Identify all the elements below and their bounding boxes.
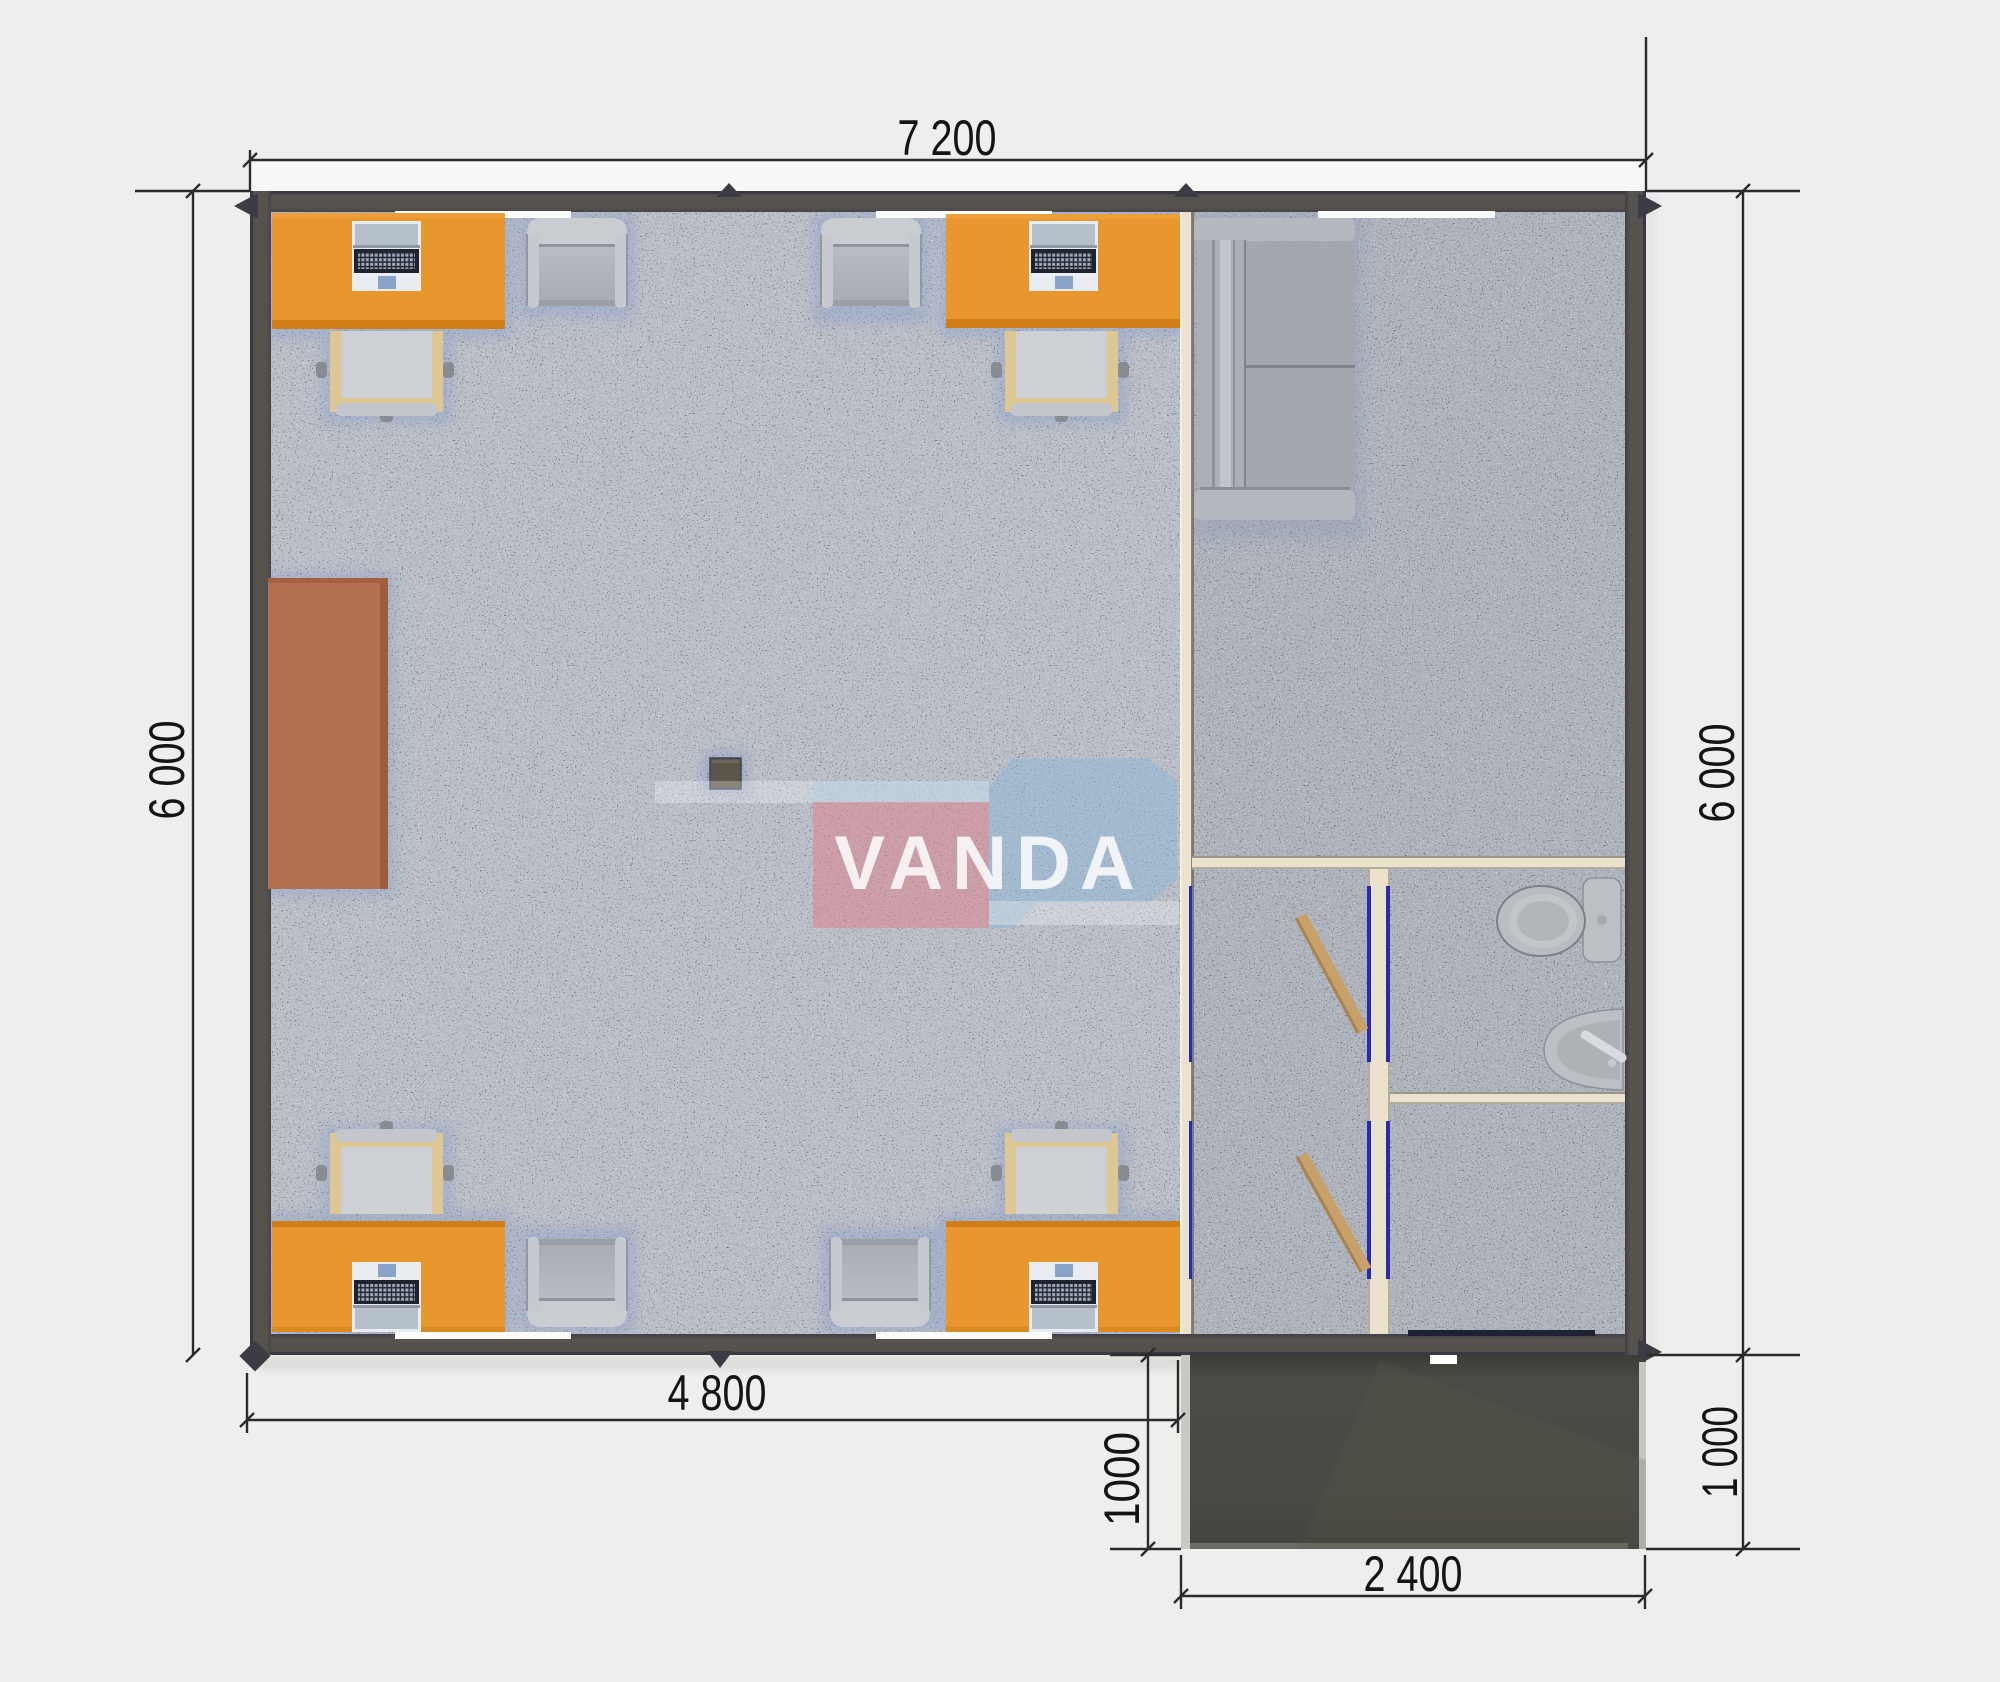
svg-text:7 200: 7 200 <box>898 110 997 166</box>
svg-text:2 400: 2 400 <box>1364 1546 1463 1602</box>
svg-text:VANDA: VANDA <box>834 821 1144 906</box>
svg-text:6 000: 6 000 <box>139 721 195 820</box>
svg-text:4 800: 4 800 <box>668 1365 767 1421</box>
svg-text:1 000: 1 000 <box>1692 1406 1748 1498</box>
svg-text:6 000: 6 000 <box>1689 724 1745 823</box>
svg-text:1000: 1000 <box>1094 1432 1150 1526</box>
